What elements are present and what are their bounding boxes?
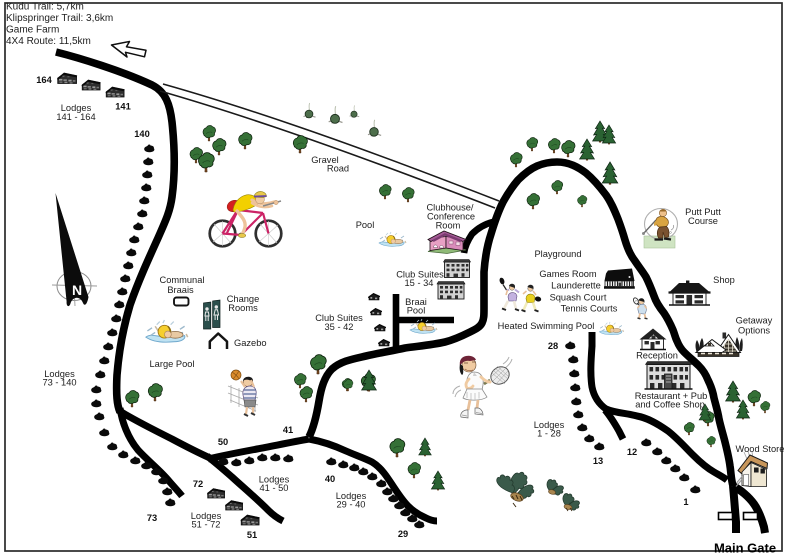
svg-text:Course: Course <box>688 216 718 226</box>
svg-text:Wood Store: Wood Store <box>736 444 785 454</box>
svg-text:N: N <box>72 282 82 298</box>
svg-text:40: 40 <box>325 474 335 484</box>
svg-text:51 - 72: 51 - 72 <box>192 520 221 530</box>
svg-text:Communal: Communal <box>160 275 205 285</box>
svg-text:41: 41 <box>283 425 293 435</box>
svg-text:Games Room: Games Room <box>539 269 597 279</box>
svg-text:29 - 40: 29 - 40 <box>337 500 366 510</box>
svg-text:164: 164 <box>36 75 52 85</box>
svg-text:Playground: Playground <box>534 249 581 259</box>
svg-text:141 - 164: 141 - 164 <box>56 112 95 122</box>
svg-text:and Coffee Shop: and Coffee Shop <box>635 400 705 410</box>
svg-text:141: 141 <box>115 102 131 112</box>
svg-text:Pool: Pool <box>356 220 375 230</box>
svg-text:Pool: Pool <box>407 306 426 316</box>
svg-text:Road: Road <box>327 164 349 174</box>
svg-text:35 - 42: 35 - 42 <box>325 322 354 332</box>
svg-text:28: 28 <box>548 341 558 351</box>
svg-text:12: 12 <box>627 447 637 457</box>
svg-text:Klipspringer Trail: 3,6km: Klipspringer Trail: 3,6km <box>6 13 113 24</box>
svg-text:Large Pool: Large Pool <box>150 359 195 369</box>
svg-text:Squash Court: Squash Court <box>550 293 607 303</box>
svg-text:Shop: Shop <box>713 275 735 285</box>
svg-text:1 - 28: 1 - 28 <box>537 429 561 439</box>
svg-text:Reception: Reception <box>636 351 678 361</box>
svg-text:4X4 Route: 11,5km: 4X4 Route: 11,5km <box>6 36 91 47</box>
svg-text:Braais: Braais <box>167 285 194 295</box>
svg-text:Game Farm: Game Farm <box>6 25 59 36</box>
svg-text:15 - 34: 15 - 34 <box>405 278 434 288</box>
svg-text:Gazebo: Gazebo <box>234 338 267 348</box>
svg-text:Rooms: Rooms <box>228 303 258 313</box>
svg-text:Getaway: Getaway <box>736 316 773 326</box>
svg-text:Main Gate: Main Gate <box>714 541 776 556</box>
svg-text:Options: Options <box>738 326 770 336</box>
svg-text:73: 73 <box>147 513 157 523</box>
svg-text:140: 140 <box>134 129 150 139</box>
svg-text:51: 51 <box>247 530 257 540</box>
svg-text:Room: Room <box>436 221 461 231</box>
svg-text:Tennis Courts: Tennis Courts <box>561 304 618 314</box>
svg-text:72: 72 <box>193 479 203 489</box>
svg-text:41 - 50: 41 - 50 <box>260 483 289 493</box>
svg-text:73 - 140: 73 - 140 <box>42 378 76 388</box>
svg-text:13: 13 <box>593 456 603 466</box>
svg-text:50: 50 <box>218 437 228 447</box>
svg-text:Kudu Trail: 5,7km: Kudu Trail: 5,7km <box>6 2 84 13</box>
svg-text:Launderette: Launderette <box>551 281 601 291</box>
svg-text:Heated Swimming Pool: Heated Swimming Pool <box>498 321 595 331</box>
svg-text:1: 1 <box>683 497 688 507</box>
svg-text:29: 29 <box>398 529 408 539</box>
